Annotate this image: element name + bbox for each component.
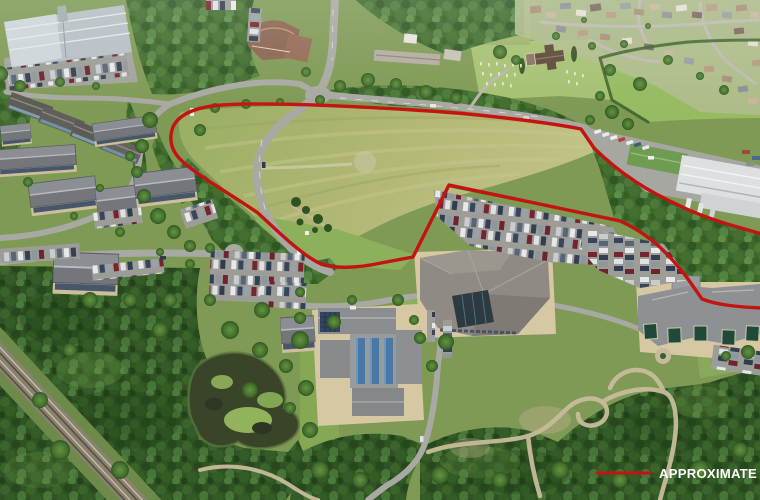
haze-overlay xyxy=(0,0,760,110)
office-building-a xyxy=(414,248,556,338)
legend-label: APPROXIMATE SIT xyxy=(659,466,760,481)
aerial-photograph: APPROXIMATE SIT xyxy=(0,0,760,500)
